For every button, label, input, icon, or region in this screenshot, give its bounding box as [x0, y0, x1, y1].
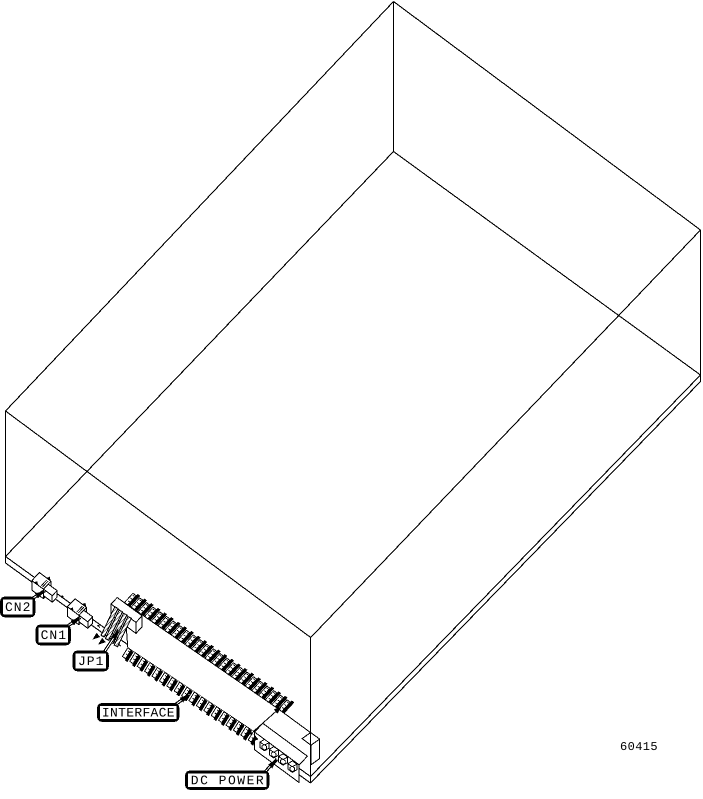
svg-text:CN1: CN1 — [41, 628, 67, 643]
svg-text:JP1: JP1 — [78, 654, 104, 669]
svg-text:CN2: CN2 — [5, 600, 31, 615]
svg-text:INTERFACE: INTERFACE — [102, 705, 175, 720]
svg-text:60415: 60415 — [620, 740, 658, 754]
svg-text:DC POWER: DC POWER — [191, 773, 265, 788]
